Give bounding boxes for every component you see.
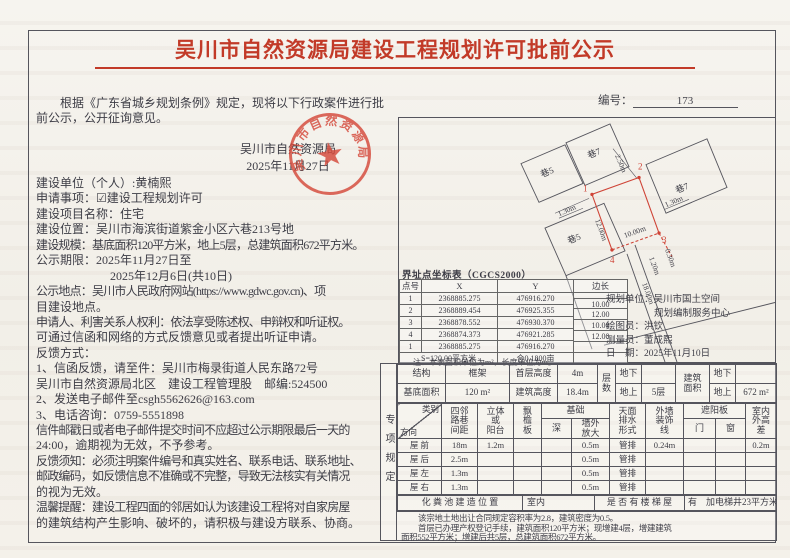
coordinate-table-block: 界址点坐标表（CGCS2000） 点号 X Y 边长 1 2368885.275… (399, 267, 631, 365)
notice-line: 邮政编码，如反馈信息不准确或不完整，导致无法核实有关情况 (36, 469, 394, 484)
area-above-value: 672 m² (736, 384, 777, 403)
wall-enlarge-value: 0.5m (572, 439, 610, 453)
header-wall-trim: 外墙 装饰 线 (646, 404, 684, 439)
first-floor-height-label: 首层高度 (510, 365, 558, 384)
credit-line: 规划编制服务中心 (606, 308, 730, 322)
notice-line: 1、信函反馈，请至件：吴川市梅录街道人民东路72号 (36, 361, 394, 376)
depth-value (542, 453, 572, 467)
dim-10_00m: 10.00m (623, 224, 648, 240)
level-diff-value (746, 453, 777, 467)
area-below-label: 地下 (710, 365, 736, 384)
title-underline (95, 67, 695, 69)
trim-value (646, 467, 684, 481)
notice-line: 申请事项：☑建设工程规划许可 (36, 191, 394, 206)
point-no: 1 (400, 293, 422, 305)
point-label-3: 3 (662, 235, 667, 245)
structure-summary-table: 结构 框架 首层高度 4m 层 数 地下 建筑 面积 地下 基底面积 120 m… (397, 364, 777, 403)
point-label-4: 4 (610, 255, 615, 265)
base-area-label: 基底面积 (398, 384, 446, 403)
balcony-value (478, 481, 514, 495)
window-shade-value (716, 453, 746, 467)
notice-line: 建设规模：基底面积120平方米，地上5层，总建筑面积672平方米。 (36, 238, 394, 253)
survey-credits: 规划单位：吴川市国土空间 规划编制服务中心 绘图员：洪钦 测量员：董成熙 日 期… (606, 294, 730, 362)
point-no: 3 (400, 317, 422, 329)
coord-y: 476925.355 (498, 305, 574, 317)
coord-y: 476930.370 (498, 317, 574, 329)
notice-line: 建设项目名称：住宅 (36, 207, 394, 222)
doc-number: 编号：173 (598, 92, 738, 108)
depth-value (542, 481, 572, 495)
credit-line: 测量员：董成熙 (606, 335, 730, 349)
eave-value (514, 481, 542, 495)
wall-enlarge-value: 0.5m (572, 481, 610, 495)
stair-room-label: 是 否 有 楼 梯 屋 (595, 496, 685, 511)
wall-enlarge-value: 0.5m (572, 453, 610, 467)
site-plan-box: 1 2 3 4 巷5 巷7 巷7 巷5 2.50m 1.30m 12.00m 1… (398, 117, 776, 363)
spec-note-line: 面积552平方米；增建后共5层，总建筑面积672平方米。 (401, 533, 773, 543)
header-foundation: 基础 (542, 404, 610, 419)
wall-enlarge-value: 0.5m (572, 467, 610, 481)
balcony-value (478, 453, 514, 467)
dim-0_30m: 0.30m (663, 248, 678, 269)
direction-label: 屋 左 (398, 467, 442, 481)
coord-x: 2368874.373 (422, 329, 498, 341)
window-shade-value (716, 439, 746, 453)
direction-row: 屋 右 1.3m 0.5m 管排 (398, 481, 777, 495)
notice-line: 温馨提醒：建设工程四面的邻居如认为该建设工程将对自家房屋 (36, 500, 394, 515)
notice-line: 的视为无效。 (36, 485, 394, 500)
building-area-label: 建筑 面积 (676, 365, 710, 403)
coordinate-table: 点号 X Y 边长 1 2368885.275 476916.270 10.00… (399, 279, 628, 365)
balcony-value: 1.2m (478, 439, 514, 453)
septic-location-label: 化 粪 池 建 造 位 置 (398, 496, 523, 511)
trim-value: 0.24m (646, 439, 684, 453)
point-no: 1 (400, 341, 422, 353)
dim-2_50m: 2.50m (613, 153, 629, 174)
floors-above-value: 5层 (642, 384, 676, 403)
header-eave-board: 飘 檐 板 (514, 404, 542, 439)
building-height-value: 18.4m (558, 384, 598, 403)
depth-value (542, 439, 572, 453)
parcel-lane5-bottom (545, 203, 625, 275)
coord-y: 476916.270 (498, 293, 574, 305)
area-below-value (736, 365, 777, 384)
credit-line: 规划单位：吴川市国土空间 (606, 294, 730, 308)
distance-value: 1.3m (442, 481, 478, 495)
window-shade-value (716, 467, 746, 481)
header-level-difference: 室内 外高 差 (746, 404, 777, 439)
septic-stairs-table: 化 粪 池 建 造 位 置 室内 是 否 有 楼 梯 屋 有 加电梯井23平方米 (397, 495, 777, 511)
notice-line: 公示期限：2025年11月27日至 (36, 253, 394, 268)
notice-line: 公示地点：吴川市人民政府网站(https://www.gdwc.gov.cn)、… (36, 284, 394, 299)
doc-number-label: 编号： (598, 95, 633, 107)
parcel-label-lane7a: 巷7 (586, 146, 603, 161)
window-shade-value (716, 481, 746, 495)
drainage-value: 管排 (610, 467, 646, 481)
distance-value: 1.3m (442, 467, 478, 481)
notice-line: 信件邮戳日或者电子邮件提交时间不应超过公示期限最后一天的 (36, 423, 394, 438)
subheader-door: 门 (684, 419, 716, 439)
stair-room-value: 有 加电梯井23平方米 (685, 496, 777, 511)
direction-row: 屋 前 18m 1.2m 0.5m 管排 0.24m 0.2m (398, 439, 777, 453)
structure-label: 结构 (398, 365, 446, 384)
drainage-value: 管排 (610, 481, 646, 495)
drainage-value: 管排 (610, 439, 646, 453)
septic-location-value: 室内 (523, 496, 595, 511)
scanned-notice-page: 吴川市自然资源局建设工程规划许可批前公示 编号：173 根据《广东省城乡规划条例… (0, 0, 790, 558)
door-shade-value (684, 467, 716, 481)
notice-line: 可通过信函和网络的方式反馈意见或者提出听证申请。 (36, 330, 394, 345)
coord-x: 2368878.552 (422, 317, 498, 329)
first-floor-height-value: 4m (558, 365, 598, 384)
coordinate-table-title: 界址点坐标表（CGCS2000） (399, 267, 631, 279)
diag-direction-label: 方向 (400, 428, 417, 438)
dim-1_20m: 1.20m (647, 255, 662, 276)
floors-below-label: 地下 (616, 365, 642, 384)
direction-label: 屋 后 (398, 453, 442, 467)
point-label-2: 2 (638, 162, 643, 172)
spec-note: 该宗地土地出让合同规定容积率为2.8，建筑密度为0.5。 首层已办理产权登记手续… (397, 511, 777, 543)
floors-label: 层 数 (598, 365, 616, 403)
direction-row: 屋 后 2.5m 0.5m 管排 (398, 453, 777, 467)
coord-x: 2368885.275 (422, 341, 498, 353)
area-above-label: 地上 (710, 384, 736, 403)
special-provisions-side-label: 专项规定 (381, 364, 397, 540)
depth-value (542, 467, 572, 481)
coord-y: 476921.285 (498, 329, 574, 341)
header-neighbor-distance: 四邻 路巷 间距 (442, 404, 478, 439)
direction-row: 屋 左 1.3m 0.5m 管排 (398, 467, 777, 481)
notice-line: 反馈方式： (36, 346, 394, 361)
notice-line: 的建筑结构产生影响、破坏的，请积极与建设方联系、协商。 (36, 516, 394, 531)
level-diff-value (746, 481, 777, 495)
floors-below-value (642, 365, 676, 384)
parcel-lane7-right (646, 139, 727, 213)
eave-value (514, 439, 542, 453)
trim-value (646, 453, 684, 467)
floors-above-label: 地上 (616, 384, 642, 403)
point-label-1: 1 (583, 183, 588, 193)
door-shade-value (684, 453, 716, 467)
coord-row: 1 2368885.275 476916.270 10.0012.0010.00… (400, 293, 628, 305)
boundary-point (590, 193, 593, 196)
parcel-label-lane5a: 巷5 (539, 165, 556, 180)
notice-line: 吴川市自然资源局北区 建设工程管理股 邮编:524500 (36, 377, 394, 392)
stamp-text: 吴川市自然资源局 (283, 106, 373, 174)
col-header-y: Y (498, 280, 574, 293)
building-height-label: 建筑高度 (510, 384, 558, 403)
balcony-value (478, 467, 514, 481)
svg-text:吴川市自然资源局: 吴川市自然资源局 (283, 106, 373, 174)
doc-number-value: 173 (633, 95, 738, 108)
col-header-edge: 边长 (574, 280, 628, 293)
col-header-point: 点号 (400, 280, 422, 293)
notice-line: 申请人、利害关系人权利：依法享受陈述权、申辩权和听证权。 (36, 315, 394, 330)
base-area-value: 120 m² (446, 384, 510, 403)
boundary-point (610, 248, 613, 251)
eave-value (514, 453, 542, 467)
notice-line: 2025年12月6日(共10日) (36, 269, 394, 284)
stamp-star-icon (316, 140, 345, 167)
subheader-wall-enlarge: 墙外 放大 (572, 419, 610, 439)
special-provisions-table: 专项规定 结构 框架 首层高度 4m 层 数 地下 建筑 面积 地下 (380, 363, 777, 541)
boundary-point (657, 231, 660, 234)
header-sunshade: 遮阳板 (684, 404, 746, 419)
direction-label: 屋 前 (398, 439, 442, 453)
direction-label: 屋 右 (398, 481, 442, 495)
distance-value: 2.5m (442, 453, 478, 467)
coord-x: 2368889.454 (422, 305, 498, 317)
notice-line: 反馈须知：必须注明案件编号和真实姓名、联系电话、联系地址、 (36, 454, 394, 469)
diag-category-label: 类别 (422, 405, 439, 415)
subheader-window: 窗 (716, 419, 746, 439)
point-no: 2 (400, 305, 422, 317)
credit-line: 日 期：2025年11月10日 (606, 348, 730, 362)
coord-y: 476916.270 (498, 341, 574, 353)
header-roof-drainage: 天面 排水 形式 (610, 404, 646, 439)
credit-line: 绘图员：洪钦 (606, 321, 730, 335)
eave-value (514, 467, 542, 481)
parcel-label-lane7b: 巷7 (674, 181, 691, 196)
structure-value: 框架 (446, 365, 510, 384)
notice-line: 24:00，逾期视为无效，不予参考。 (36, 438, 394, 453)
notice-title: 吴川市自然资源局建设工程规划许可批前公示 (0, 34, 790, 64)
point-no: 4 (400, 329, 422, 341)
dim-12_00m: 12.00m (593, 218, 609, 242)
trim-value (646, 481, 684, 495)
notice-line: 2、发送电子邮件至csgh5562626@163.com (36, 392, 394, 407)
diagonal-header-cell: 类别 方向 (398, 404, 442, 439)
header-balcony: 立体 或 阳台 (478, 404, 514, 439)
level-diff-value (746, 467, 777, 481)
subheader-depth: 深 (542, 419, 572, 439)
notice-line: 目建设地点。 (36, 300, 394, 315)
notice-line: 建设位置：吴川市海滨街道紫金小区六巷213号地 (36, 222, 394, 237)
parcel-label-lane5b: 巷5 (566, 231, 583, 246)
drainage-value: 管排 (610, 453, 646, 467)
notice-line: 建设单位（个人）:黄楠熙 (36, 176, 394, 191)
door-shade-value (684, 481, 716, 495)
level-diff-value: 0.2m (746, 439, 777, 453)
directions-table: 类别 方向 四邻 路巷 间距 立体 或 阳台 飘 檐 板 基础 天面 排水 形式… (397, 403, 777, 495)
distance-value: 18m (442, 439, 478, 453)
notice-line: 3、电话咨询：0759-5551898 (36, 408, 394, 423)
coord-x: 2368885.275 (422, 293, 498, 305)
col-header-x: X (422, 280, 498, 293)
notice-body: 建设单位（个人）:黄楠熙申请事项：☑建设工程规划许可建设项目名称：住宅建设位置：… (36, 176, 394, 531)
door-shade-value (684, 439, 716, 453)
boundary-point (637, 176, 640, 179)
